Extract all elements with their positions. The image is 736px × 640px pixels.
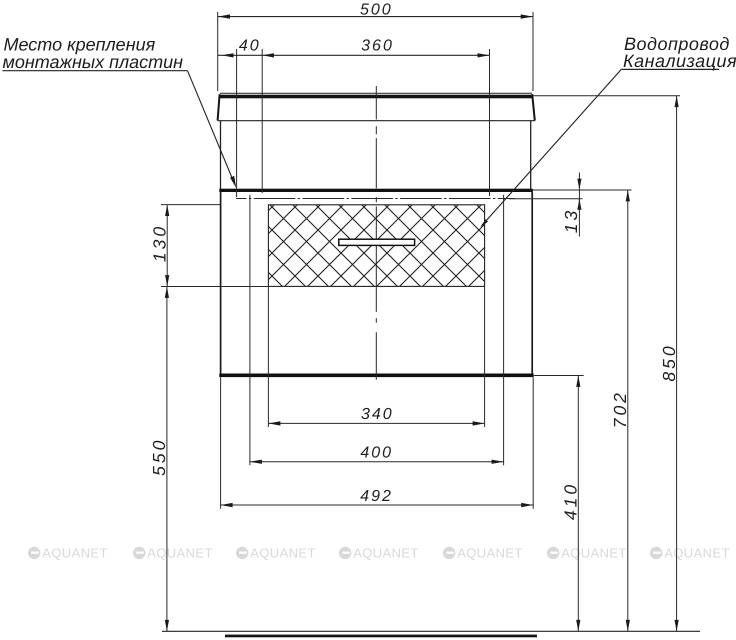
svg-text:AQUANET: AQUANET (561, 546, 627, 561)
svg-text:492: 492 (360, 488, 393, 505)
svg-text:130: 130 (149, 224, 169, 262)
svg-text:AQUANET: AQUANET (42, 546, 108, 561)
svg-text:монтажных пластин: монтажных пластин (3, 52, 184, 72)
svg-text:850: 850 (659, 343, 679, 381)
svg-text:550: 550 (149, 438, 169, 476)
svg-text:AQUANET: AQUANET (147, 546, 213, 561)
svg-text:360: 360 (361, 37, 394, 54)
svg-text:702: 702 (610, 390, 630, 428)
svg-text:500: 500 (360, 1, 393, 18)
svg-text:13: 13 (561, 208, 581, 233)
svg-text:40: 40 (239, 37, 261, 54)
svg-text:Канализация: Канализация (623, 51, 736, 71)
svg-text:340: 340 (361, 406, 394, 423)
svg-text:400: 400 (360, 445, 393, 462)
svg-text:AQUANET: AQUANET (250, 546, 316, 561)
svg-text:AQUANET: AQUANET (353, 546, 419, 561)
svg-text:AQUANET: AQUANET (457, 546, 523, 561)
svg-text:410: 410 (561, 482, 581, 520)
svg-text:AQUANET: AQUANET (664, 546, 730, 561)
